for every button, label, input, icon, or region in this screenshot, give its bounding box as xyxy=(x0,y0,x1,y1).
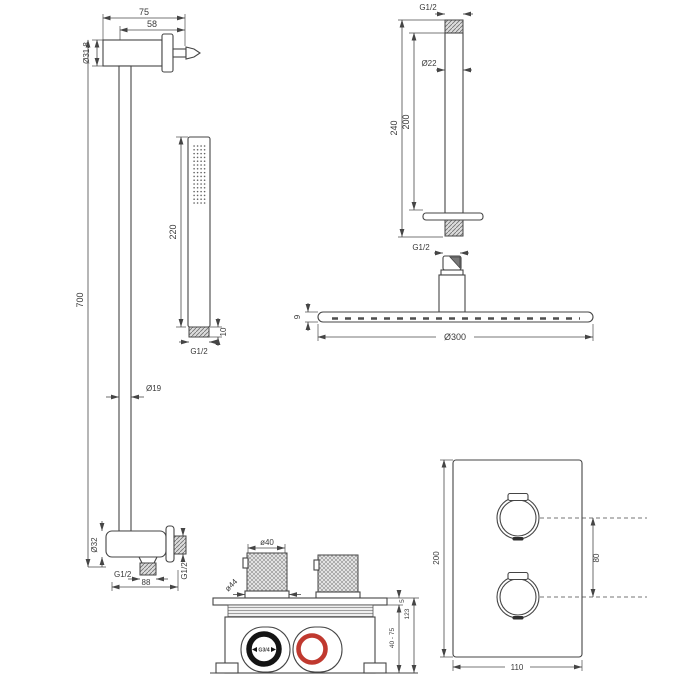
dim-head-thickness: 9 xyxy=(293,314,302,319)
trim-knob-bottom-marker xyxy=(513,616,524,620)
dim-rail-length: 700 xyxy=(75,292,85,307)
dim-plate-thickness: 5 xyxy=(399,599,406,603)
ceiling-flange xyxy=(423,213,483,220)
elbow-outlet-collar xyxy=(139,557,157,563)
bracket-screw xyxy=(173,49,186,57)
hand-shower-connector xyxy=(189,327,209,337)
dim-connector-height: 10 xyxy=(219,327,228,336)
concealed-valve-drawing: ø40 ø44 G3/4 5 40 - 75 123 xyxy=(210,538,419,673)
trim-knob-top-marker xyxy=(513,537,524,541)
dim-inlet-thread: G3/4 xyxy=(258,648,269,654)
bracket-screw-tip xyxy=(186,47,200,59)
dim-arm-total-length: 240 xyxy=(389,120,399,135)
dim-arm-bottom-thread: G1/2 xyxy=(412,243,430,252)
dim-hand-shower-thread: G1/2 xyxy=(190,347,208,356)
dim-trim-plate-height: 200 xyxy=(432,551,441,565)
shower-head-body xyxy=(318,312,593,322)
elbow-wall-thread xyxy=(174,536,186,554)
elbow-rosette xyxy=(166,526,174,562)
dim-built-in-depth: 40 - 75 xyxy=(389,628,396,649)
dim-outlet-thread: G1/2 xyxy=(114,570,132,579)
arm-pipe xyxy=(445,33,463,213)
arm-bottom-thread xyxy=(445,220,463,236)
ceiling-arm-drawing: G1/2 Ø22 240 200 G1/2 xyxy=(389,3,483,312)
valve-knob-right-clip xyxy=(314,560,319,570)
dim-bracket-depth: 75 xyxy=(139,7,149,17)
dim-arm-top-thread: G1/2 xyxy=(419,3,437,12)
rail-wall-bracket xyxy=(103,40,162,66)
trim-knob-top-tab xyxy=(508,494,528,501)
technical-drawing-canvas: 75 58 Ø31.8 700 Ø19 Ø32 G1/2 G1/2 xyxy=(0,0,685,685)
dim-arm-exposed-length: 200 xyxy=(401,114,411,129)
bracket-rosette xyxy=(162,34,173,72)
elbow-outlet-thread xyxy=(140,563,156,575)
valve-knob-right-base xyxy=(316,592,360,598)
dim-outlet-width: 88 xyxy=(142,578,151,587)
valve-mounting-plate xyxy=(213,598,387,605)
dim-trim-plate-width: 110 xyxy=(511,663,524,672)
valve-knob-left-base xyxy=(245,591,289,598)
valve-knob-right xyxy=(318,555,358,592)
dim-bracket-offset: 58 xyxy=(147,19,157,29)
trim-plate xyxy=(453,460,582,657)
hand-shower-nozzles xyxy=(192,144,207,204)
dim-head-diameter: Ø300 xyxy=(444,332,466,342)
dim-hand-shower-length: 220 xyxy=(168,224,178,239)
dim-knob-base-diameter: ø44 xyxy=(223,577,240,594)
dim-elbow-diameter: Ø32 xyxy=(90,537,99,553)
dim-wall-thread: G1/2 xyxy=(180,562,189,580)
dim-rail-diameter: Ø19 xyxy=(146,384,162,393)
rail-tube xyxy=(119,66,131,531)
dim-arm-pipe-diameter: Ø22 xyxy=(421,59,437,68)
wall-outlet-elbow xyxy=(106,531,166,557)
valve-knob-left-clip xyxy=(243,558,248,568)
dim-valve-total-height: 123 xyxy=(404,608,411,619)
dim-knob-diameter: ø40 xyxy=(260,538,274,547)
valve-wall-zone xyxy=(228,605,373,617)
shower-set-dimension-diagram: 75 58 Ø31.8 700 Ø19 Ø32 G1/2 G1/2 xyxy=(0,0,685,685)
connector-collar xyxy=(441,270,463,275)
head-connector-cylinder xyxy=(439,275,465,312)
hand-shower-drawing: 220 10 G1/2 xyxy=(168,137,228,356)
trim-knob-bottom-tab xyxy=(508,573,528,580)
dim-bracket-diameter: Ø31.8 xyxy=(82,42,91,64)
trim-plate-drawing: 200 110 80 xyxy=(432,460,647,672)
valve-foot-left xyxy=(216,663,238,673)
valve-foot-right xyxy=(364,663,386,673)
valve-knob-left xyxy=(247,553,287,591)
arm-top-thread xyxy=(445,20,463,33)
dim-trim-knob-spacing: 80 xyxy=(592,553,601,562)
